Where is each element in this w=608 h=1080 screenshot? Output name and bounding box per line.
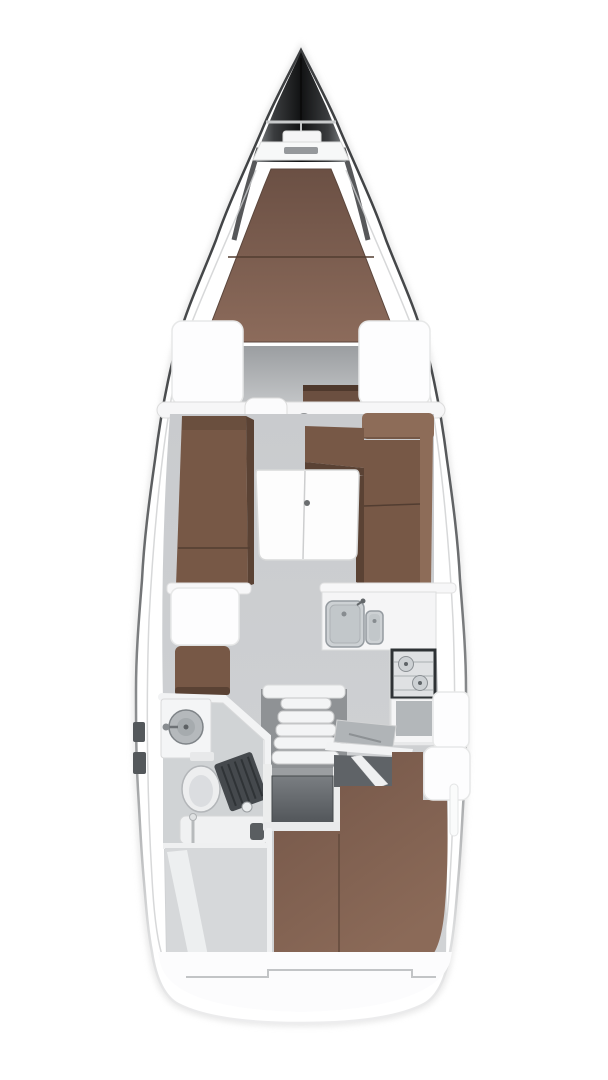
deck-plan-drawing — [0, 0, 608, 1080]
step-rail-port — [263, 764, 272, 830]
dinette-backrest-side — [420, 430, 433, 586]
stove-burner-aft-center — [418, 681, 422, 685]
saloon — [176, 413, 434, 586]
engine-cover-lip — [272, 768, 333, 776]
saloon-table-fitting — [304, 500, 310, 506]
companionway-step — [276, 724, 336, 736]
stove-burner-fore-center — [404, 662, 408, 666]
head-pole-cap — [190, 814, 197, 821]
locker-port — [171, 588, 239, 645]
companionway-step — [281, 698, 331, 709]
galley-sink-small-basin — [369, 614, 380, 641]
settee-port — [176, 416, 248, 586]
step-rail-aft — [263, 822, 341, 831]
galley-faucet — [361, 599, 366, 604]
forward-step-top — [303, 385, 360, 392]
saloon-table — [256, 470, 359, 560]
galley-sink-small-drain — [373, 619, 377, 623]
deck-hatch-port — [172, 321, 243, 405]
settee-port-shade — [182, 416, 246, 430]
galley-sink-basin — [330, 605, 360, 643]
starboard-deck-groove — [450, 784, 458, 836]
head-faucet-knob — [163, 724, 170, 731]
dinette-seat-side — [364, 440, 420, 586]
yacht-floor-plan — [0, 0, 608, 1080]
locker-starboard-lower — [424, 747, 470, 800]
galley-stove — [392, 650, 435, 698]
port-hull-fitting-fore — [133, 722, 145, 742]
head-handle-knob — [242, 802, 252, 812]
head-fitting — [250, 823, 264, 840]
galley-sink-drain — [342, 612, 347, 617]
deck-hatch-starboard — [359, 321, 430, 405]
head-compartment — [161, 697, 268, 854]
bow — [253, 52, 349, 162]
port-hull-fitting-aft — [133, 752, 146, 774]
galley-cabinet-opening — [396, 701, 432, 736]
toilet-bowl — [189, 775, 213, 807]
companionway-step — [278, 711, 334, 723]
engine-compartment — [272, 776, 333, 824]
head-vanity-lip — [190, 752, 214, 761]
dinette-seat-aft-facing — [305, 426, 364, 468]
bow-vent-slot — [284, 147, 318, 154]
seat-port — [175, 646, 230, 694]
companionway-step — [272, 751, 339, 764]
head-basin-drain — [184, 725, 189, 730]
locker-starboard-upper — [433, 692, 469, 748]
companionway-bridge — [263, 685, 345, 698]
